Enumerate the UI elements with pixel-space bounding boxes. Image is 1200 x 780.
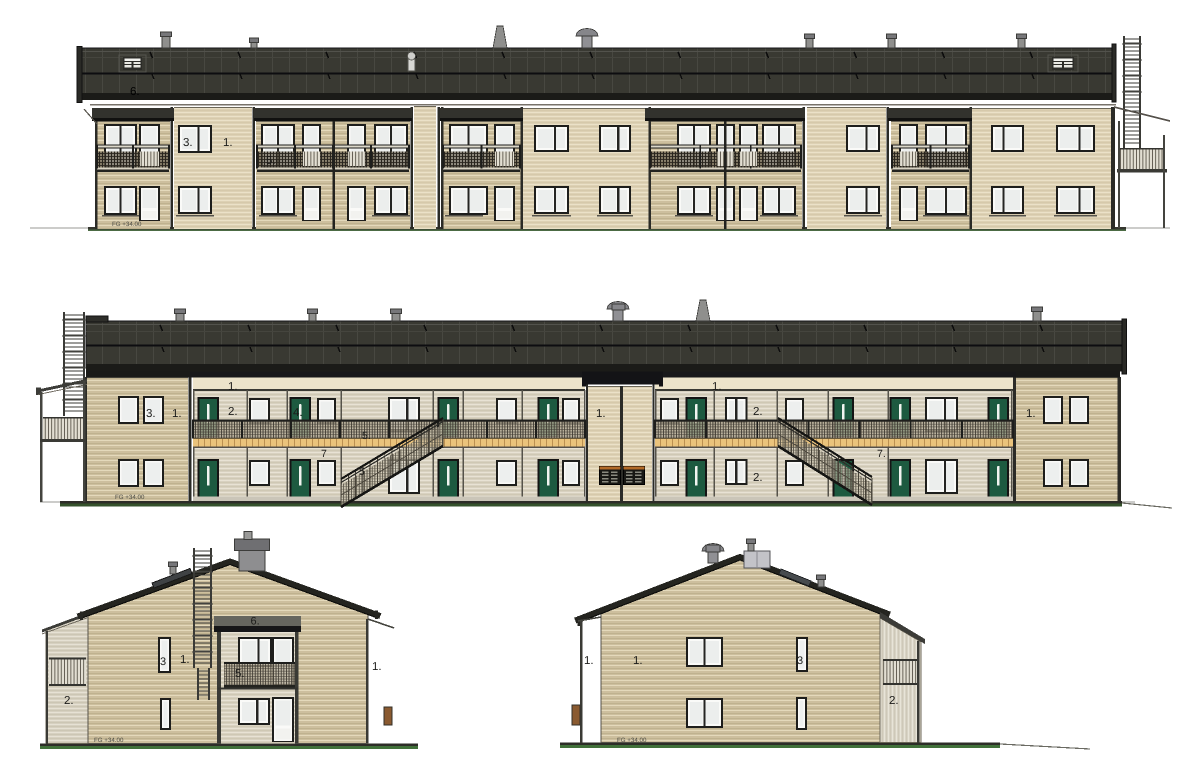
svg-text:FG +34.00: FG +34.00 [112,221,142,228]
svg-text:FG +34.00: FG +34.00 [617,737,647,744]
svg-text:4.: 4. [293,407,303,419]
svg-text:5.: 5. [266,155,276,167]
svg-text:1.: 1. [596,408,606,420]
svg-text:1.: 1. [633,655,643,667]
svg-text:1.: 1. [223,137,233,149]
svg-text:FG +34.00: FG +34.00 [94,737,124,744]
svg-text:2.: 2. [228,406,238,418]
svg-text:2.: 2. [64,695,74,707]
svg-text:2.: 2. [753,406,763,418]
svg-text:5.: 5. [362,430,371,442]
svg-text:1.: 1. [1026,408,1036,420]
svg-text:1.: 1. [180,654,190,666]
svg-text:5.: 5. [235,668,245,680]
svg-text:5: 5 [359,466,365,478]
svg-text:3.: 3. [183,137,193,149]
svg-text:2.: 2. [753,472,763,484]
svg-text:2.: 2. [889,695,899,707]
svg-text:1.: 1. [584,655,594,667]
svg-text:7.: 7. [877,448,886,460]
svg-text:6.: 6. [251,616,260,628]
svg-text:3: 3 [160,656,166,668]
svg-text:1.: 1. [172,408,182,420]
svg-text:3.: 3. [146,408,156,420]
svg-text:6.: 6. [130,86,140,98]
svg-text:1.: 1. [228,381,238,393]
svg-text:FG +34.00: FG +34.00 [115,494,145,501]
svg-text:3: 3 [797,655,803,667]
svg-text:1.: 1. [712,381,722,393]
svg-text:1.: 1. [372,661,382,673]
svg-text:7: 7 [321,448,327,460]
